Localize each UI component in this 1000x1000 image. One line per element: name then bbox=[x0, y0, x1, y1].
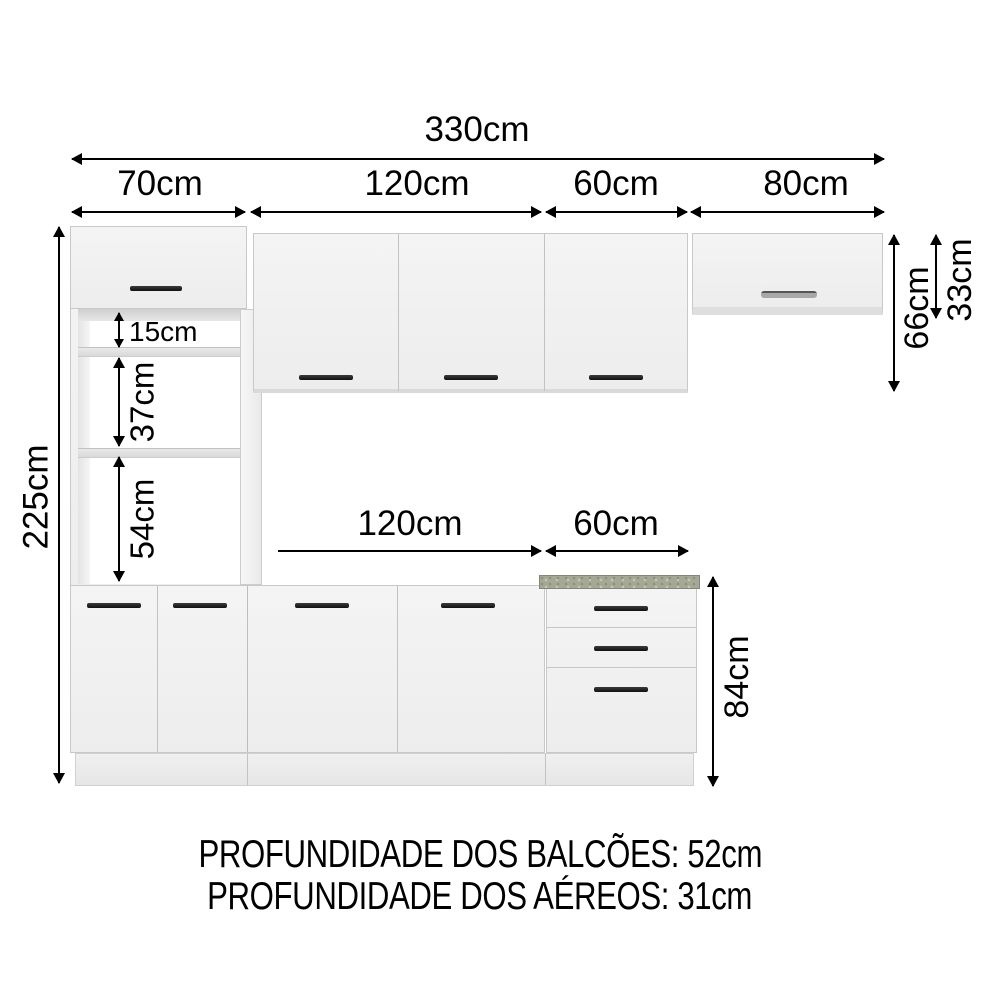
base-door-handle bbox=[295, 603, 349, 608]
drawer-handle bbox=[594, 606, 648, 611]
upper-cabinet-80 bbox=[692, 233, 883, 315]
drawer-divider bbox=[547, 667, 696, 668]
tower-shelf bbox=[78, 347, 240, 357]
upper-door-handle bbox=[589, 375, 643, 380]
aereo-80-height-label: 33cm bbox=[943, 238, 977, 321]
niche-37-label: 37cm bbox=[126, 362, 159, 443]
tower-shelf bbox=[78, 448, 240, 458]
tower-width-label: 70cm bbox=[117, 166, 203, 201]
depth-note-balcoes: PROFUNDIDADE DOS BALCÕES: 52cm bbox=[0, 835, 960, 874]
upper-80-door-handle bbox=[761, 291, 817, 298]
depth-note-aereos: PROFUNDIDADE DOS AÉREOS: 31cm bbox=[0, 877, 960, 916]
upper-cabinet-door-divider bbox=[544, 234, 545, 391]
base-door-divider bbox=[397, 586, 398, 752]
base-door-handle bbox=[173, 603, 227, 608]
balcao-120-width-label: 120cm bbox=[357, 506, 462, 541]
upper-door-handle bbox=[444, 375, 498, 380]
tower-door-handle bbox=[130, 286, 182, 291]
aereo-total-height-arrow bbox=[893, 235, 895, 391]
plinth bbox=[75, 753, 694, 786]
base-height-arrow bbox=[712, 577, 714, 786]
drawer-unit bbox=[546, 588, 697, 753]
upper-cabinet-door-divider bbox=[398, 234, 399, 391]
niche-54-label: 54cm bbox=[126, 479, 159, 560]
balcao-60-width-label: 60cm bbox=[573, 506, 659, 541]
tower-cabinet-door bbox=[70, 226, 247, 309]
aereo-60-width-label: 60cm bbox=[573, 166, 659, 201]
aereo-60-width-arrow bbox=[546, 211, 687, 213]
kitchen-dimension-diagram: 330cm 70cm 120cm 60cm 80cm 225cm 15cm 37… bbox=[0, 0, 1000, 1000]
total-width-arrow bbox=[72, 158, 884, 160]
aereo-120-width-label: 120cm bbox=[364, 166, 469, 201]
drawer-divider bbox=[547, 627, 696, 628]
plinth-joint bbox=[545, 754, 546, 785]
niche-37-arrow bbox=[118, 358, 120, 446]
aereo-total-height-label: 66cm bbox=[900, 266, 934, 349]
aereo-120-width-arrow bbox=[251, 211, 541, 213]
plinth-joint bbox=[247, 754, 248, 785]
depth-note-aereos-text: PROFUNDIDADE DOS AÉREOS: 31cm bbox=[208, 877, 753, 916]
base-cabinet-joint bbox=[247, 586, 248, 752]
base-cabinets bbox=[70, 585, 545, 753]
niche-15-arrow bbox=[118, 313, 120, 347]
base-height-label: 84cm bbox=[720, 635, 754, 718]
tower-width-arrow bbox=[72, 211, 245, 213]
base-door-handle bbox=[441, 603, 495, 608]
niche-15-label: 15cm bbox=[129, 318, 197, 346]
total-width-label: 330cm bbox=[424, 112, 529, 147]
drawer-handle bbox=[594, 687, 648, 692]
aereo-80-width-arrow bbox=[691, 211, 884, 213]
balcao-60-width-arrow bbox=[546, 550, 688, 552]
base-door-divider bbox=[157, 586, 158, 752]
total-height-arrow bbox=[58, 227, 60, 783]
depth-note-balcoes-text: PROFUNDIDADE DOS BALCÕES: 52cm bbox=[198, 835, 762, 874]
upper-door-handle bbox=[299, 375, 353, 380]
aereo-80-width-label: 80cm bbox=[763, 166, 849, 201]
upper-cabinet-120-60 bbox=[253, 233, 688, 393]
drawer-handle bbox=[594, 646, 648, 651]
niche-54-arrow bbox=[118, 457, 120, 581]
balcao-120-width-arrow bbox=[278, 550, 541, 552]
aereo-80-height-arrow bbox=[935, 235, 937, 318]
countertop bbox=[539, 575, 700, 589]
base-door-handle bbox=[87, 603, 141, 608]
total-height-label: 225cm bbox=[19, 444, 54, 549]
